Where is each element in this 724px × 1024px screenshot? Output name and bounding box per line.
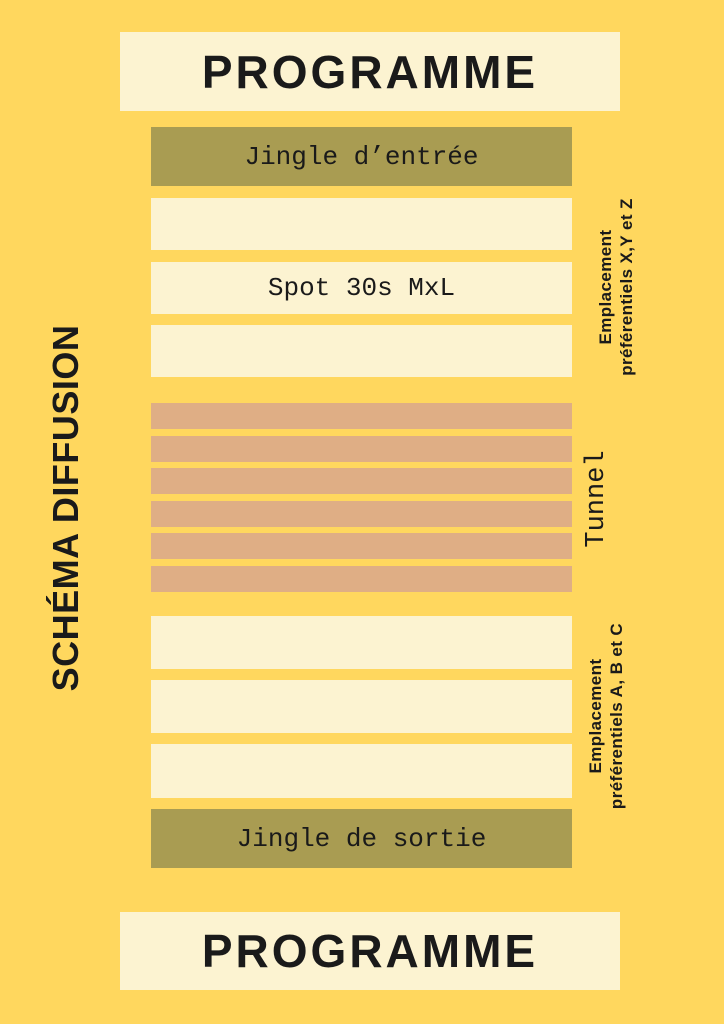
tunnel-bar: [151, 468, 572, 494]
schema-diffusion-side-title: SCHÉMA DIFFUSION: [45, 325, 87, 692]
emplacement-xyz-line2: préférentiels X,Y et Z: [616, 198, 637, 376]
emplacement-abc-line2: préférentiels A, B et C: [606, 623, 627, 809]
empty-slot-bar: [151, 680, 572, 733]
programme-footer-box: PROGRAMME: [120, 912, 620, 990]
tunnel-bar: [151, 533, 572, 559]
tunnel-bar: [151, 436, 572, 462]
emplacement-abc-annotation: Emplacement préférentiels A, B et C: [585, 623, 627, 809]
tunnel-bar: [151, 566, 572, 592]
emplacement-xyz-line1: Emplacement: [595, 198, 616, 376]
programme-header-box: PROGRAMME: [120, 32, 620, 111]
spot-30s-label: Spot 30s MxL: [268, 273, 455, 303]
empty-slot-bar: [151, 325, 572, 377]
programme-footer-title: PROGRAMME: [202, 924, 538, 978]
jingle-entree-bar: Jingle d’entrée: [151, 127, 572, 186]
tunnel-bar: [151, 403, 572, 429]
poster-canvas: SCHÉMA DIFFUSION PROGRAMME Jingle d’entr…: [0, 0, 724, 1024]
tunnel-bar: [151, 501, 572, 527]
spot-30s-bar: Spot 30s MxL: [151, 262, 572, 314]
jingle-sortie-label: Jingle de sortie: [237, 824, 487, 854]
programme-header-title: PROGRAMME: [202, 45, 538, 99]
emplacement-xyz-annotation: Emplacement préférentiels X,Y et Z: [595, 198, 637, 376]
jingle-sortie-bar: Jingle de sortie: [151, 809, 572, 868]
jingle-entree-label: Jingle d’entrée: [244, 142, 478, 172]
empty-slot-bar: [151, 616, 572, 669]
empty-slot-bar: [151, 744, 572, 798]
empty-slot-bar: [151, 198, 572, 250]
emplacement-abc-line1: Emplacement: [585, 623, 606, 809]
tunnel-label: Tunnel: [582, 450, 612, 547]
